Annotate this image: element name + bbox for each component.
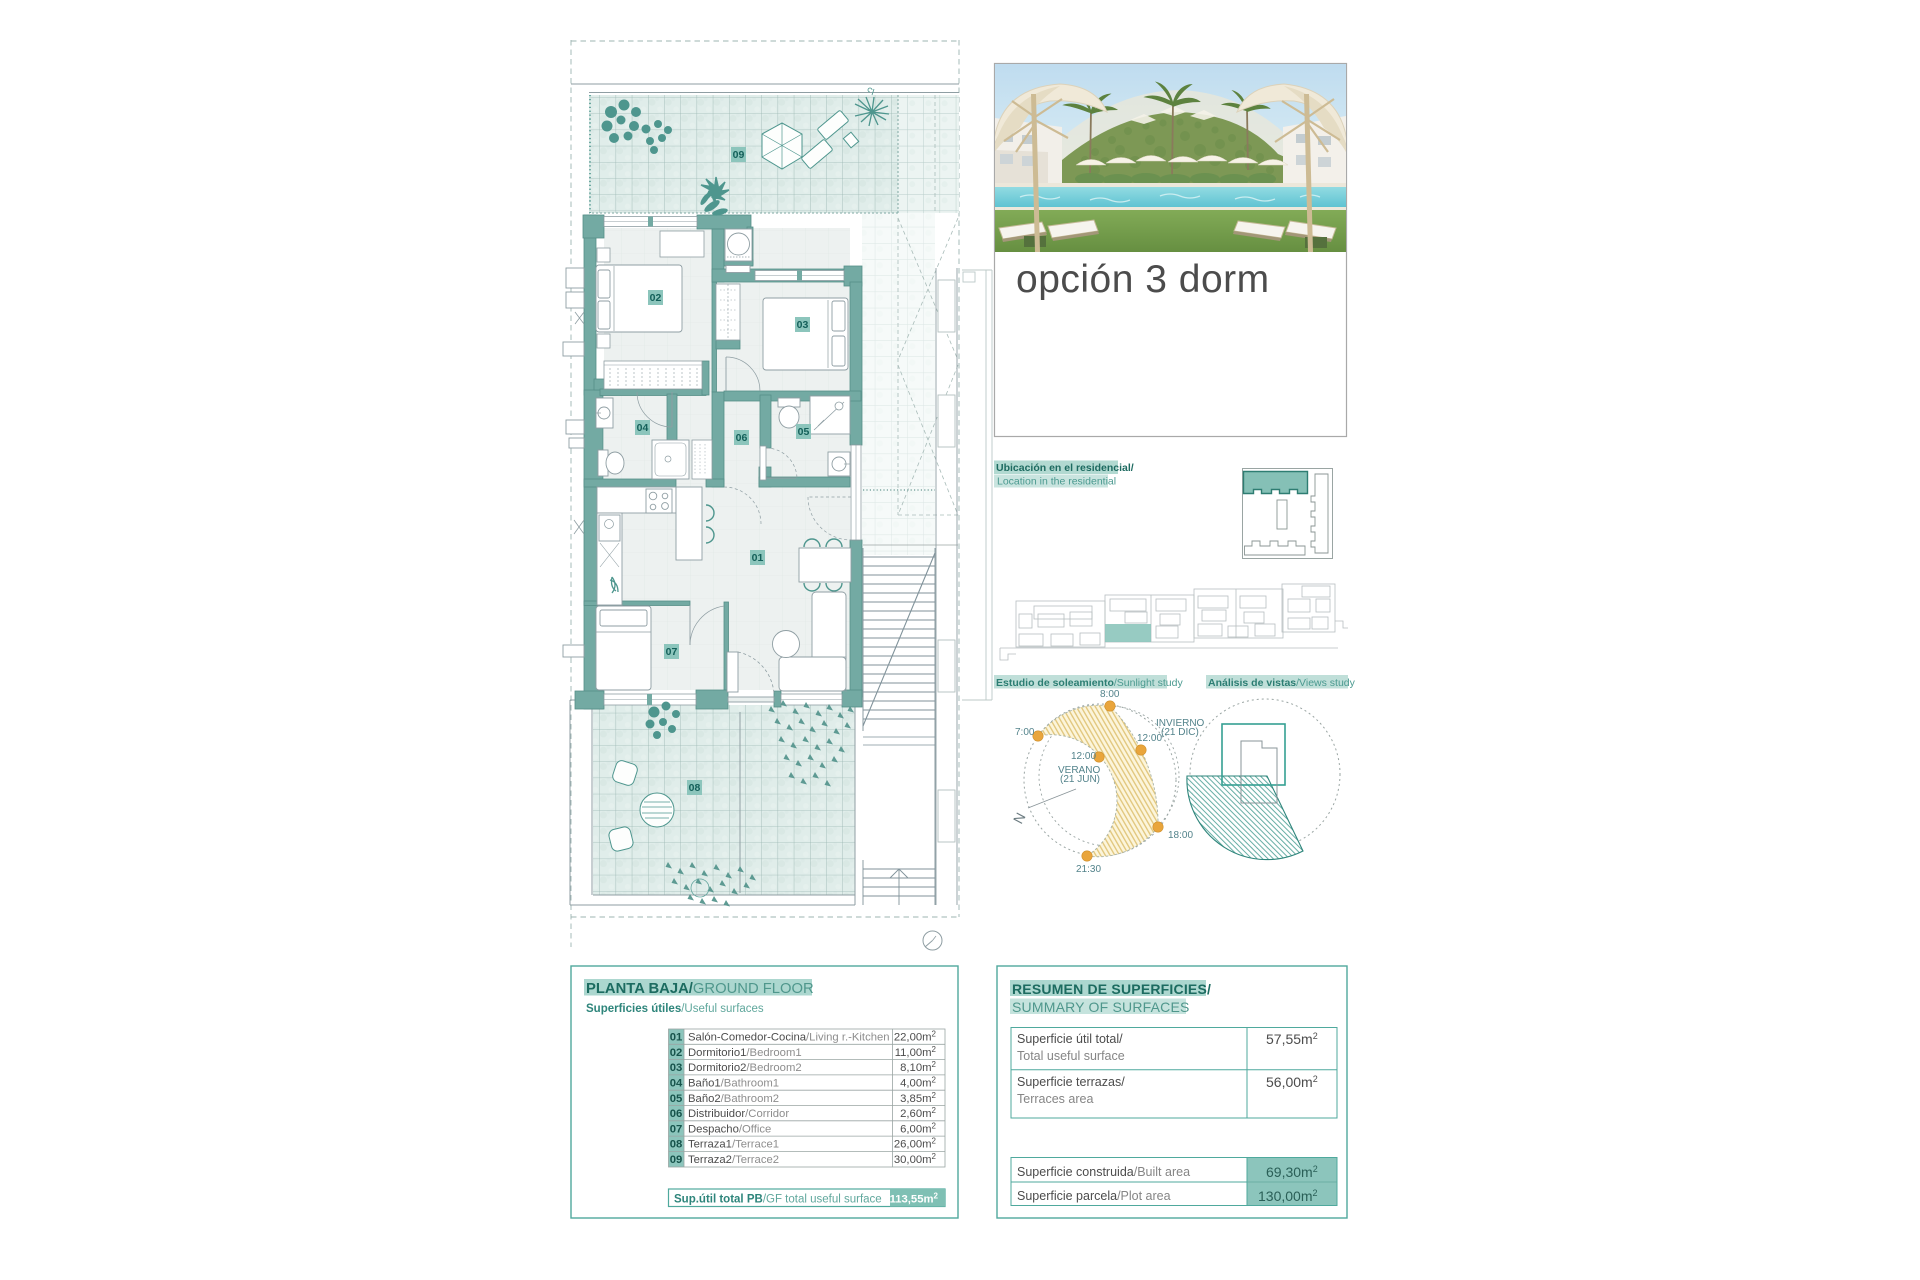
svg-text:113,55m2: 113,55m2 — [890, 1192, 939, 1206]
svg-text:(21 DIC): (21 DIC) — [1161, 727, 1199, 738]
svg-text:Terraza1/Terrace1: Terraza1/Terrace1 — [688, 1139, 779, 1151]
svg-text:4,00m2: 4,00m2 — [900, 1076, 936, 1090]
svg-text:06: 06 — [670, 1108, 683, 1120]
svg-text:07: 07 — [666, 646, 678, 658]
svg-text:Análisis de vistas/Views study: Análisis de vistas/Views study — [1208, 677, 1356, 689]
svg-text:Baño1/Bathroom1: Baño1/Bathroom1 — [688, 1078, 779, 1090]
svg-text:12:00: 12:00 — [1137, 733, 1162, 744]
svg-text:Baño2/Bathroom2: Baño2/Bathroom2 — [688, 1093, 779, 1105]
svg-text:11,00m2: 11,00m2 — [895, 1045, 937, 1059]
svg-text:Superficie construida/Built ar: Superficie construida/Built area — [1017, 1165, 1190, 1179]
svg-text:05: 05 — [670, 1093, 683, 1105]
svg-text:6,00m2: 6,00m2 — [900, 1121, 936, 1135]
svg-text:05: 05 — [798, 426, 810, 438]
svg-text:Superficies útiles/Useful surf: Superficies útiles/Useful surfaces — [586, 1003, 764, 1015]
svg-text:PLANTA BAJA/GROUND FLOOR: PLANTA BAJA/GROUND FLOOR — [586, 981, 814, 997]
svg-text:2,60m2: 2,60m2 — [900, 1106, 936, 1120]
svg-text:08: 08 — [670, 1139, 683, 1151]
svg-text:Location in the residential: Location in the residential — [997, 476, 1116, 488]
svg-text:Salón-Comedor-Cocina/Living r.: Salón-Comedor-Cocina/Living r.-Kitchen — [688, 1032, 890, 1044]
svg-text:03: 03 — [797, 319, 809, 331]
svg-text:Superficie parcela/Plot area: Superficie parcela/Plot area — [1017, 1189, 1171, 1203]
svg-text:08: 08 — [689, 782, 701, 794]
svg-text:01: 01 — [670, 1032, 683, 1044]
svg-text:04: 04 — [670, 1078, 683, 1090]
svg-text:30,00m2: 30,00m2 — [894, 1152, 937, 1166]
svg-text:8,10m2: 8,10m2 — [900, 1060, 936, 1074]
svg-text:(21 JUN): (21 JUN) — [1060, 774, 1100, 785]
svg-text:Dormitorio2/Bedroom2: Dormitorio2/Bedroom2 — [688, 1062, 802, 1074]
svg-text:130,00m2: 130,00m2 — [1258, 1188, 1318, 1204]
svg-text:Estudio de soleamiento/Sunligh: Estudio de soleamiento/Sunlight study — [996, 677, 1183, 689]
svg-text:26,00m2: 26,00m2 — [894, 1137, 937, 1151]
svg-text:09: 09 — [670, 1154, 683, 1166]
svg-text:Terraces area: Terraces area — [1017, 1092, 1093, 1106]
svg-text:09: 09 — [733, 149, 745, 161]
svg-text:22,00m2: 22,00m2 — [894, 1030, 937, 1044]
svg-text:57,55m2: 57,55m2 — [1266, 1031, 1318, 1047]
svg-text:7:00: 7:00 — [1015, 727, 1035, 738]
svg-text:02: 02 — [670, 1047, 683, 1059]
svg-text:RESUMEN DE SUPERFICIES/: RESUMEN DE SUPERFICIES/ — [1012, 981, 1211, 997]
svg-text:03: 03 — [670, 1062, 683, 1074]
svg-text:Sup.útil total PB/GF total use: Sup.útil total PB/GF total useful surfac… — [674, 1194, 882, 1206]
svg-text:Superficie terrazas/: Superficie terrazas/ — [1017, 1075, 1125, 1089]
svg-text:Distribuidor/Corridor: Distribuidor/Corridor — [688, 1108, 789, 1120]
svg-text:Terraza2/Terrace2: Terraza2/Terrace2 — [688, 1154, 779, 1166]
svg-text:Superficie útil total/: Superficie útil total/ — [1017, 1032, 1123, 1046]
svg-text:Dormitorio1/Bedroom1: Dormitorio1/Bedroom1 — [688, 1047, 802, 1059]
svg-text:8:00: 8:00 — [1100, 689, 1120, 700]
svg-text:Despacho/Office: Despacho/Office — [688, 1123, 771, 1135]
svg-text:Ubicación en el residencial/: Ubicación en el residencial/ — [996, 462, 1134, 474]
svg-text:3,85m2: 3,85m2 — [900, 1091, 936, 1105]
svg-text:21:30: 21:30 — [1076, 864, 1101, 875]
svg-text:06: 06 — [736, 432, 748, 444]
svg-text:SUMMARY OF SURFACES: SUMMARY OF SURFACES — [1012, 999, 1190, 1015]
svg-text:opción 3 dorm: opción 3 dorm — [1016, 258, 1270, 301]
svg-text:69,30m2: 69,30m2 — [1266, 1164, 1318, 1180]
svg-text:12:00: 12:00 — [1071, 751, 1096, 762]
svg-text:56,00m2: 56,00m2 — [1266, 1074, 1318, 1090]
svg-text:07: 07 — [670, 1123, 683, 1135]
svg-text:01: 01 — [752, 552, 764, 564]
svg-text:18:00: 18:00 — [1168, 830, 1193, 841]
svg-text:Total useful surface: Total useful surface — [1017, 1049, 1125, 1063]
svg-text:04: 04 — [637, 422, 649, 434]
svg-text:02: 02 — [650, 292, 662, 304]
